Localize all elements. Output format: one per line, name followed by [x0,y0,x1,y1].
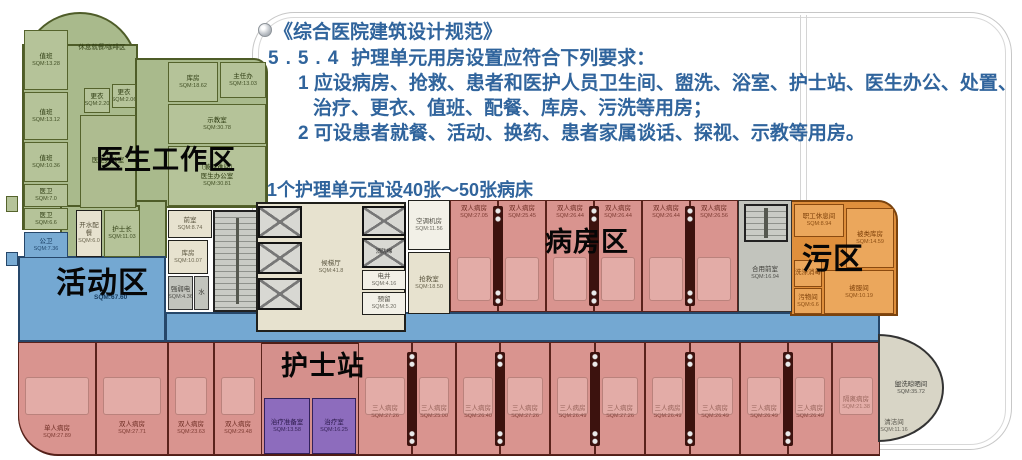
riser-shaft [495,352,505,446]
room-rest-coffee: 休息就餐/咖啡区 [66,30,138,66]
room-hvac: 空调机房SQM:11.56 [408,200,450,250]
room-dirty-items: 污物间SQM:6.6 [794,288,822,314]
room-ward-triple: 三人病房SQM:27.26 [595,342,645,455]
room-ward-triple: 三人病房SQM:27.26 [500,342,550,455]
room-water: 水 [194,276,209,310]
doctor-zone-label: 医生工作区 [96,138,236,177]
room-rescue: 抢救室SQM:18.50 [408,252,450,314]
room-ward-triple: 三人病房SQM:25.00 [412,342,456,455]
clause-number: 5.5.4 [268,48,345,69]
room-storage-core: 库房SQM:10.07 [168,240,208,274]
room-ward-triple: 三人病房SQM:26.49 [788,342,832,455]
room-staff-wc-1: 医卫SQM:7.0 [24,184,68,207]
room-ward-triple: 三人病房SQM:26.49 [645,342,690,455]
nurse-zone-label: 护士站 [281,344,365,383]
elevator-shaft [258,242,302,274]
room-ward-double: 双人病房SQM:27.05 [450,200,498,312]
dirty-zone-label: 污区 [802,234,864,278]
bullet-icon [258,23,272,37]
room-treatment-prep: 治疗准备室SQM:13.58 [264,398,310,454]
riser-shaft [685,206,695,306]
room-ward-double: 双人病房SQM:23.63 [168,342,214,455]
room-staff-wc-2: 医卫SQM:6.6 [24,208,68,230]
ward-zone-label: 病房区 [545,220,629,259]
room-ward-single: 单人病房SQM:27.89 [18,342,96,455]
balcony-stub [6,196,18,212]
riser-shaft [407,352,417,446]
regulation-item1-line2: 治疗、更衣、值班、配餐、库房、污洗等用房； [313,93,712,120]
regulation-item2: 2 可设患者就餐、活动、换药、患者家属谈话、探视、示教等用房。 [298,118,865,145]
elevator-shaft [258,278,302,310]
room-duty-1: 值班SQM:13.28 [24,30,68,90]
room-ward-double: 双人病房SQM:25.45 [498,200,546,312]
frame-line [806,15,807,200]
clause-text: 护理单元用房设置应符合下列要求： [351,48,655,69]
room-ward-isolation: 隔离病房SQM:21.38 [832,342,880,455]
room-ward-triple: 三人病房SQM:26.49 [740,342,788,455]
stairs-west [213,210,262,312]
room-public-wc: 公卫SQM:7.36 [24,232,68,258]
room-staff-rest: 职工休息间SQM:8.94 [794,204,844,237]
elevator-shaft [258,206,302,238]
room-changing-2: 更衣SQM:2.06 [112,84,136,108]
room-storage-doctor: 库房SQM:18.62 [168,62,218,102]
room-front: 前室SQM:8.74 [168,210,212,238]
elevator-shaft [362,206,406,236]
room-duty-3: 值班SQM:10.36 [24,142,68,182]
room-changing-1: 更衣SQM:2.20 [84,88,110,113]
room-treatment: 治疗室SQM:16.25 [312,398,356,454]
room-ward-triple: 三人病房SQM:26.49 [690,342,740,455]
slide: 《综合医院建筑设计规范》 5.5.4护理单元用房设置应符合下列要求： 1 应设病… [0,0,1022,460]
room-electric: 强弱电SQM:4.36 [168,276,193,310]
room-electric-shaft: 电井SQM:4.16 [362,270,406,290]
beds-note: 1个护理单元宜设40张～50张病床 [267,176,533,202]
riser-shaft [783,352,793,446]
frame-line [800,15,801,200]
room-director-office: 主任办SQM:13.03 [220,62,266,98]
room-cleaning: 清洁间SQM:11.16 [874,412,914,440]
room-ward-triple: 三人病房SQM:27.26 [358,342,412,455]
regulation-clause: 5.5.4护理单元用房设置应符合下列要求： [268,43,655,70]
room-ward-triple: 三人病房SQM:26.40 [456,342,500,455]
activity-zone-sqm: SQM:67.60 [94,294,127,301]
room-reserved: 预留SQM:5.20 [362,292,406,315]
room-ward-double: 双人病房SQM:26.56 [690,200,738,312]
riser-shaft [685,352,695,446]
room-duty-2: 值班SQM:13.12 [24,92,68,140]
stairs-east [744,204,788,242]
room-ward-double: 双人病房SQM:26.44 [642,200,690,312]
riser-shaft [493,206,503,306]
room-head-nurse: 护士长SQM:11.03 [104,210,140,257]
room-ward-triple: 三人病房SQM:26.49 [550,342,595,455]
balcony-stub [6,252,18,266]
room-ward-double: 双人病房SQM:27.71 [96,342,168,455]
riser-shaft [590,352,600,446]
fire-elevator-label: 消防梯 [364,247,404,255]
regulation-title: 《综合医院建筑设计规范》 [274,17,502,44]
room-ward-double: 双人病房SQM:29.48 [214,342,262,455]
room-pantry: 开水配餐SQM:6.0 [76,210,102,257]
regulation-item1-line1: 1 应设病房、抢救、患者和医护人员卫生间、盥洗、浴室、护士站、医生办公、处置、 [298,68,1017,95]
